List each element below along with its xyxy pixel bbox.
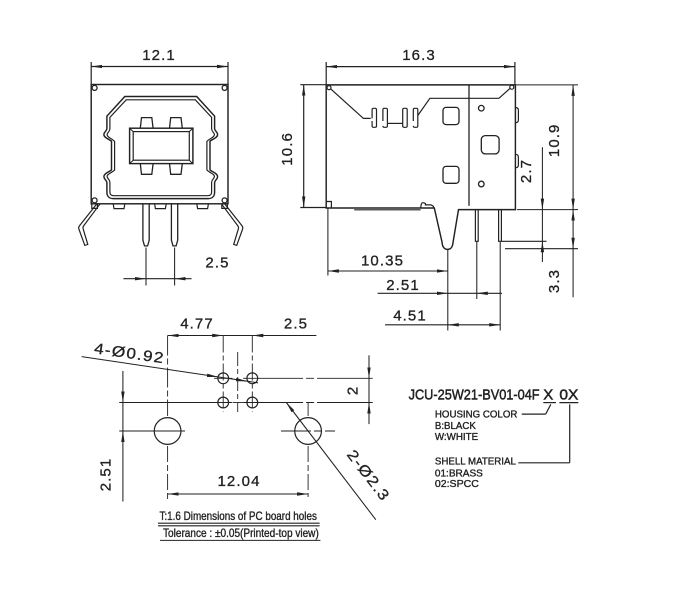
svg-text:X: X	[543, 387, 553, 404]
svg-text:10.35: 10.35	[361, 253, 404, 270]
svg-text:10.6: 10.6	[279, 132, 296, 166]
svg-text:W:WHITE: W:WHITE	[435, 431, 478, 443]
svg-text:12.1: 12.1	[142, 47, 176, 64]
svg-text:0X: 0X	[559, 387, 578, 404]
svg-text:4.77: 4.77	[180, 316, 214, 333]
svg-text:12.04: 12.04	[217, 473, 260, 490]
svg-text:2.5: 2.5	[205, 255, 229, 272]
svg-text:T:1.6 Dimensions of PC board h: T:1.6 Dimensions of PC board holes	[160, 509, 317, 523]
svg-text:Tolerance : ±0.05(Printed-top: Tolerance : ±0.05(Printed-top view)	[163, 526, 319, 540]
svg-text:2.7: 2.7	[518, 159, 535, 183]
svg-text:2.51: 2.51	[98, 458, 115, 492]
svg-text:2-Ø2.3: 2-Ø2.3	[343, 447, 393, 505]
svg-text:2.5: 2.5	[284, 316, 308, 333]
svg-text:2.51: 2.51	[386, 277, 420, 294]
svg-text:16.3: 16.3	[402, 47, 436, 64]
svg-text:4.51: 4.51	[393, 308, 427, 325]
svg-text:3.3: 3.3	[546, 269, 563, 293]
svg-text:10.9: 10.9	[546, 123, 563, 157]
svg-text:SHELL MATERIAL: SHELL MATERIAL	[435, 456, 516, 468]
svg-text:02:SPCC: 02:SPCC	[435, 478, 479, 490]
svg-text:JCU-25W21-BV01-04F: JCU-25W21-BV01-04F	[409, 387, 540, 404]
svg-text:2: 2	[345, 386, 362, 395]
svg-text:HOUSING COLOR: HOUSING COLOR	[435, 409, 518, 421]
